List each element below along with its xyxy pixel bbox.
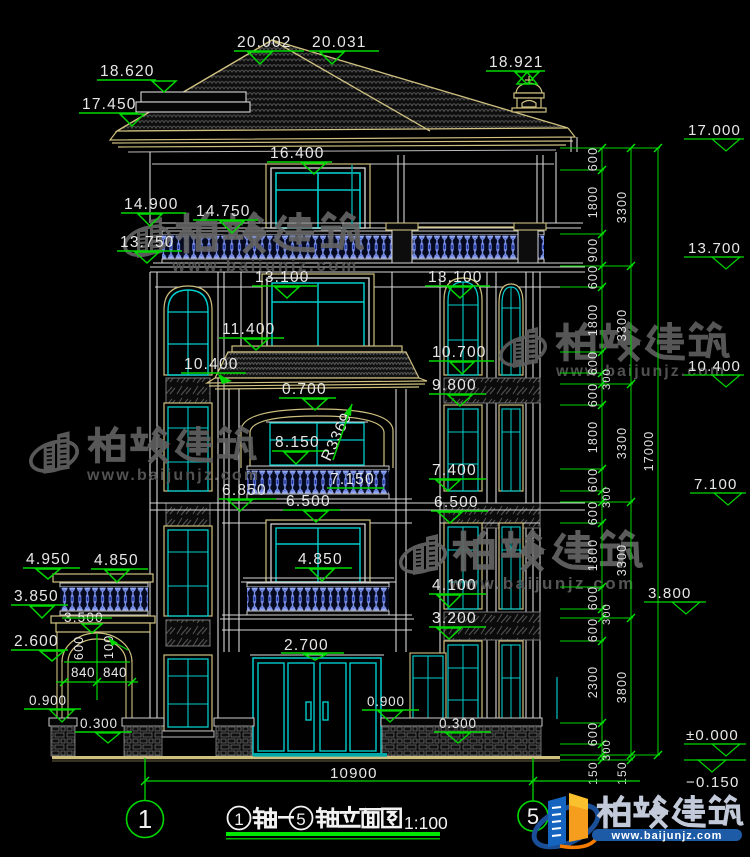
svg-text:840: 840 xyxy=(71,665,95,680)
svg-text:17.000: 17.000 xyxy=(688,122,741,139)
svg-text:900: 900 xyxy=(586,238,600,262)
svg-text:3.200: 3.200 xyxy=(432,610,477,627)
svg-text:1800: 1800 xyxy=(586,304,600,337)
svg-text:5: 5 xyxy=(296,810,305,829)
svg-text:3300: 3300 xyxy=(615,544,629,577)
svg-text:0.300: 0.300 xyxy=(439,716,477,731)
svg-text:1800: 1800 xyxy=(586,539,600,572)
svg-text:16.400: 16.400 xyxy=(270,145,325,162)
svg-text:6.500: 6.500 xyxy=(434,494,479,511)
svg-text:7.100: 7.100 xyxy=(694,476,738,493)
svg-text:11.400: 11.400 xyxy=(222,321,275,338)
svg-text:14.900: 14.900 xyxy=(124,196,179,213)
svg-text:8.150: 8.150 xyxy=(275,434,320,451)
svg-text:0.900: 0.900 xyxy=(367,694,405,709)
svg-text:2.600: 2.600 xyxy=(14,633,59,650)
svg-text:1: 1 xyxy=(138,804,152,834)
svg-text:18.620: 18.620 xyxy=(100,63,155,80)
svg-text:3.850: 3.850 xyxy=(14,588,59,605)
svg-text:10.700: 10.700 xyxy=(432,344,487,361)
svg-text:600: 600 xyxy=(586,351,600,375)
svg-text:4.950: 4.950 xyxy=(26,551,71,568)
svg-text:6.500: 6.500 xyxy=(286,493,331,510)
svg-text:13.100: 13.100 xyxy=(255,269,310,286)
svg-text:0.900: 0.900 xyxy=(29,693,67,708)
svg-text:3300: 3300 xyxy=(615,191,629,224)
svg-text:4.850: 4.850 xyxy=(298,551,343,568)
svg-text:3300: 3300 xyxy=(615,309,629,342)
svg-text:−0.150: −0.150 xyxy=(686,774,740,791)
svg-text:840: 840 xyxy=(103,665,127,680)
svg-text:0.700: 0.700 xyxy=(282,381,327,398)
svg-text:2300: 2300 xyxy=(586,666,600,699)
svg-text:600: 600 xyxy=(72,636,86,660)
svg-text:300: 300 xyxy=(601,739,613,761)
svg-text:1:100: 1:100 xyxy=(404,813,448,833)
svg-text:3300: 3300 xyxy=(615,427,629,460)
svg-text:10.400: 10.400 xyxy=(688,358,741,375)
svg-text:7.400: 7.400 xyxy=(432,462,477,479)
svg-text:600: 600 xyxy=(586,586,600,610)
svg-text:6.850: 6.850 xyxy=(222,482,267,499)
svg-text:20.002: 20.002 xyxy=(237,34,292,51)
svg-text:4.100: 4.100 xyxy=(432,577,477,594)
svg-text:13.750: 13.750 xyxy=(120,234,175,251)
svg-text:300: 300 xyxy=(601,368,613,390)
svg-text:7.150: 7.150 xyxy=(330,471,375,488)
svg-text:2.700: 2.700 xyxy=(284,637,329,654)
svg-text:10.400: 10.400 xyxy=(184,356,239,373)
svg-text:0.300: 0.300 xyxy=(80,716,118,731)
svg-text:300: 300 xyxy=(601,486,613,508)
svg-text:20.031: 20.031 xyxy=(312,34,367,51)
svg-text:600: 600 xyxy=(586,265,600,289)
svg-text:18.921: 18.921 xyxy=(489,54,544,71)
svg-text:600: 600 xyxy=(586,618,600,642)
svg-text:10900: 10900 xyxy=(330,765,378,782)
svg-text:14.750: 14.750 xyxy=(196,203,251,220)
svg-text:3800: 3800 xyxy=(615,671,629,704)
svg-text:300: 300 xyxy=(601,603,613,625)
svg-text:600: 600 xyxy=(586,383,600,407)
svg-text:13.100: 13.100 xyxy=(428,269,483,286)
svg-text:1800: 1800 xyxy=(586,421,600,454)
svg-text:9.800: 9.800 xyxy=(432,377,477,394)
svg-text:4.850: 4.850 xyxy=(94,552,139,569)
svg-text:3.800: 3.800 xyxy=(648,585,692,602)
svg-text:13.700: 13.700 xyxy=(688,240,741,257)
svg-text:1800: 1800 xyxy=(586,186,600,219)
svg-text:600: 600 xyxy=(586,501,600,525)
svg-text:www.baijunjz.com: www.baijunjz.com xyxy=(611,830,723,842)
svg-text:1: 1 xyxy=(234,810,243,829)
svg-text:17.450: 17.450 xyxy=(82,96,137,113)
svg-text:600: 600 xyxy=(586,468,600,492)
svg-text:600: 600 xyxy=(586,722,600,746)
svg-text:600: 600 xyxy=(586,147,600,171)
svg-text:17000: 17000 xyxy=(642,431,656,472)
svg-text:±0.000: ±0.000 xyxy=(686,727,739,744)
